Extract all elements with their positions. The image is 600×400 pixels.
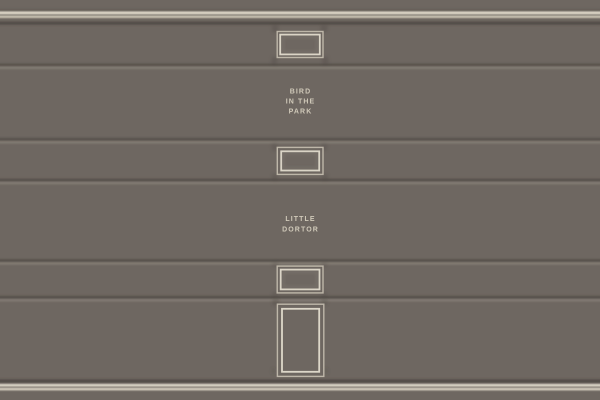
svg-text:LITTLE: LITTLE	[285, 216, 315, 223]
svg-text:BIRD: BIRD	[290, 89, 312, 96]
svg-text:IN THE: IN THE	[286, 99, 316, 106]
svg-text:DORTOR: DORTOR	[282, 226, 319, 233]
svg-text:PARK: PARK	[289, 109, 313, 116]
